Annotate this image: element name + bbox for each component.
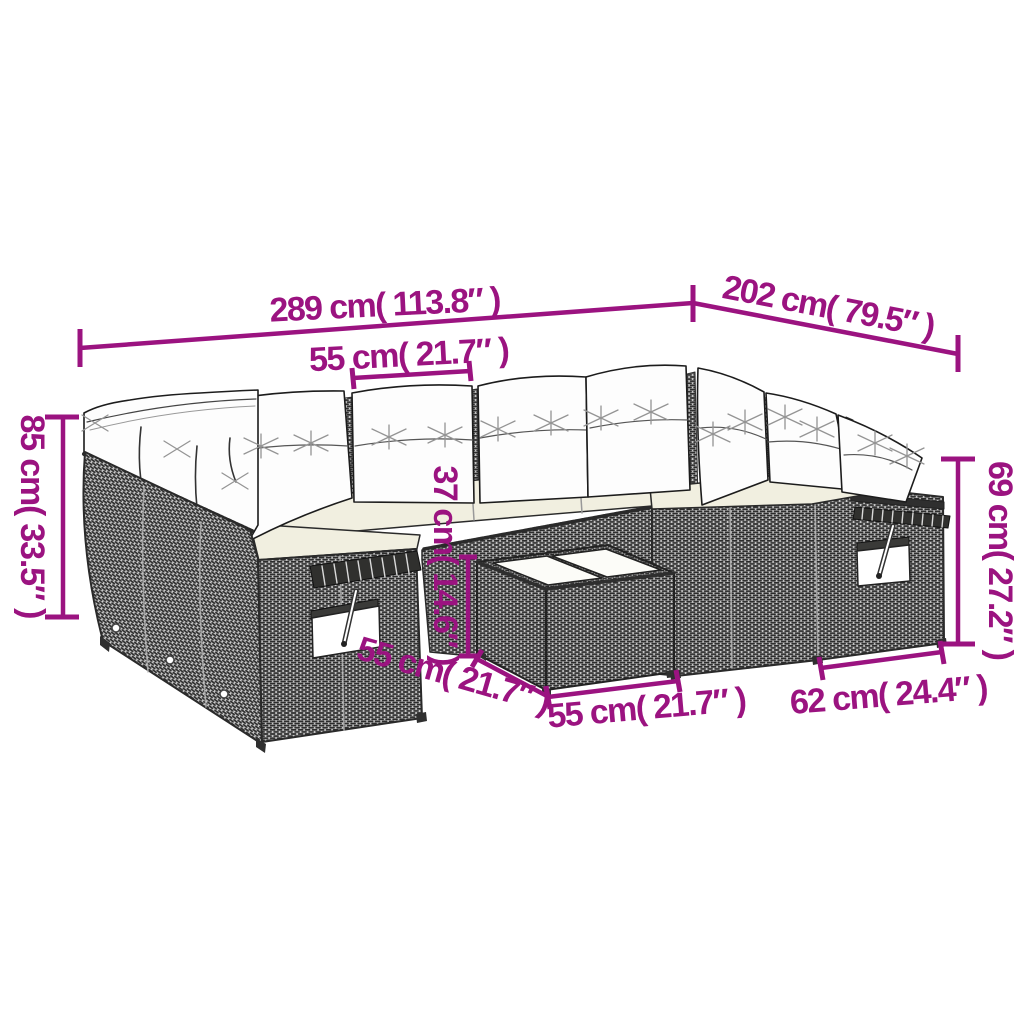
- svg-text:69 cm( 27.2″ ): 69 cm( 27.2″ ): [981, 461, 1019, 661]
- svg-text:85 cm( 33.5″ ): 85 cm( 33.5″ ): [13, 415, 51, 620]
- svg-text:37 cm( 14.6″ ): 37 cm( 14.6″ ): [426, 466, 464, 667]
